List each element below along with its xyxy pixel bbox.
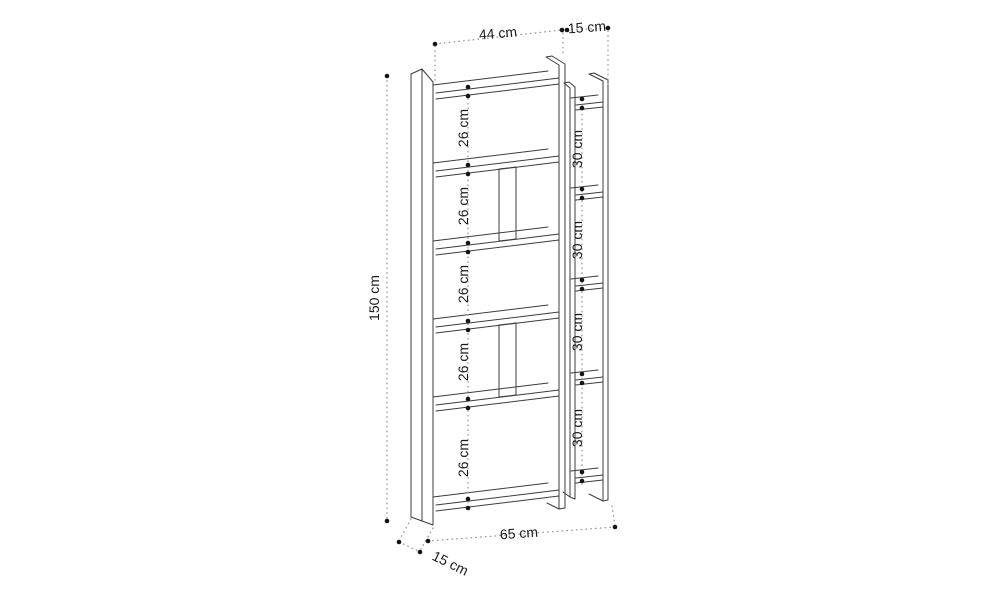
main-divider-row2 xyxy=(499,167,516,241)
shelf-front-top xyxy=(576,102,603,105)
dim-dot xyxy=(580,479,585,484)
shelf-front-top xyxy=(576,283,603,286)
dim-dot xyxy=(466,319,471,324)
dim-dot xyxy=(466,406,471,411)
shelf-front-bottom xyxy=(436,162,559,177)
dim-dot xyxy=(466,506,471,511)
dim-dot xyxy=(466,94,471,99)
diagram-canvas: 44 cm 15 cm 150 cm 65 cm 15 cm 26 cm26 c… xyxy=(0,0,1000,590)
shelf-back-edge xyxy=(433,71,548,85)
shelf-back-edge xyxy=(433,483,548,497)
dim-dot xyxy=(397,540,402,545)
shelf-front-bottom xyxy=(436,84,559,99)
shelf-gap-label: 30 cm xyxy=(569,313,585,351)
main-right-panel xyxy=(546,56,565,509)
dim-dot xyxy=(613,525,618,530)
shelf-gap-label: 30 cm xyxy=(569,130,585,168)
dim-dot xyxy=(580,287,585,292)
dim-dot xyxy=(580,372,585,377)
shelf-front-bottom xyxy=(436,496,559,511)
shelf-front-top xyxy=(436,78,559,93)
shelf-gap-label: 26 cm xyxy=(455,109,471,147)
shelf-front-bottom xyxy=(436,396,559,411)
shelf-front-top xyxy=(436,490,559,505)
shelf-front-bottom xyxy=(436,318,559,333)
label-total-width-bottom: 65 cm xyxy=(499,524,538,543)
main-left-panel xyxy=(411,69,433,525)
dim-dot xyxy=(580,470,585,475)
main-divider-row4 xyxy=(499,323,516,397)
shelf-front-top xyxy=(436,156,559,171)
dim-dot xyxy=(466,397,471,402)
ext-line-15-bottom-a xyxy=(400,519,411,539)
shelf-back-edge xyxy=(433,383,548,397)
dim-dot xyxy=(580,381,585,386)
ext-line-65-right xyxy=(612,506,615,525)
shelf-gap-label: 26 cm xyxy=(455,187,471,225)
shelf-front-top xyxy=(576,377,603,380)
dim-dot xyxy=(466,497,471,502)
dim-dot xyxy=(466,85,471,90)
shelf-front-top xyxy=(576,475,603,478)
dim-dot xyxy=(418,550,423,555)
dim-dot xyxy=(606,26,611,31)
shelf-gap-label: 26 cm xyxy=(455,343,471,381)
shelf-gap-label: 26 cm xyxy=(455,439,471,477)
label-main-width-top: 44 cm xyxy=(478,23,517,42)
shelf-back-edge xyxy=(433,149,548,163)
dim-dot xyxy=(433,42,438,47)
dim-dot xyxy=(580,106,585,111)
ext-line-15-bottom-b xyxy=(421,528,433,549)
dim-dot xyxy=(466,241,471,246)
shelf-front-bottom xyxy=(436,240,559,255)
bookshelf-dimension-drawing: 44 cm 15 cm 150 cm 65 cm 15 cm 26 cm26 c… xyxy=(0,0,1000,590)
shelf-gap-label: 30 cm xyxy=(569,409,585,447)
main-unit-drawing xyxy=(411,56,565,525)
dim-dot xyxy=(466,328,471,333)
dim-dot xyxy=(426,539,431,544)
dim-line-15-bottom xyxy=(399,542,420,552)
shelf-gap-label: 26 cm xyxy=(455,265,471,303)
dim-dot xyxy=(580,196,585,201)
dim-dot xyxy=(560,28,565,33)
shelf-front-top xyxy=(576,192,603,195)
main-shelves xyxy=(433,71,559,511)
dim-dot xyxy=(580,278,585,283)
label-height-left: 150 cm xyxy=(366,275,382,321)
label-side-width-top: 15 cm xyxy=(567,18,606,37)
dim-dot xyxy=(385,74,390,79)
shelf-front-top xyxy=(436,234,559,249)
side-right-panel xyxy=(589,73,608,501)
dim-dot xyxy=(466,250,471,255)
shelf-front-top xyxy=(436,312,559,327)
shelf-back-edge xyxy=(433,305,548,319)
dim-dot xyxy=(580,187,585,192)
dim-dot xyxy=(580,97,585,102)
dim-dot xyxy=(385,519,390,524)
shelf-gap-label: 30 cm xyxy=(569,221,585,259)
shelf-front-top xyxy=(436,390,559,405)
label-depth-bottom: 15 cm xyxy=(430,548,471,579)
dim-dot xyxy=(466,163,471,168)
dim-dot xyxy=(466,172,471,177)
shelf-back-edge xyxy=(433,227,548,241)
